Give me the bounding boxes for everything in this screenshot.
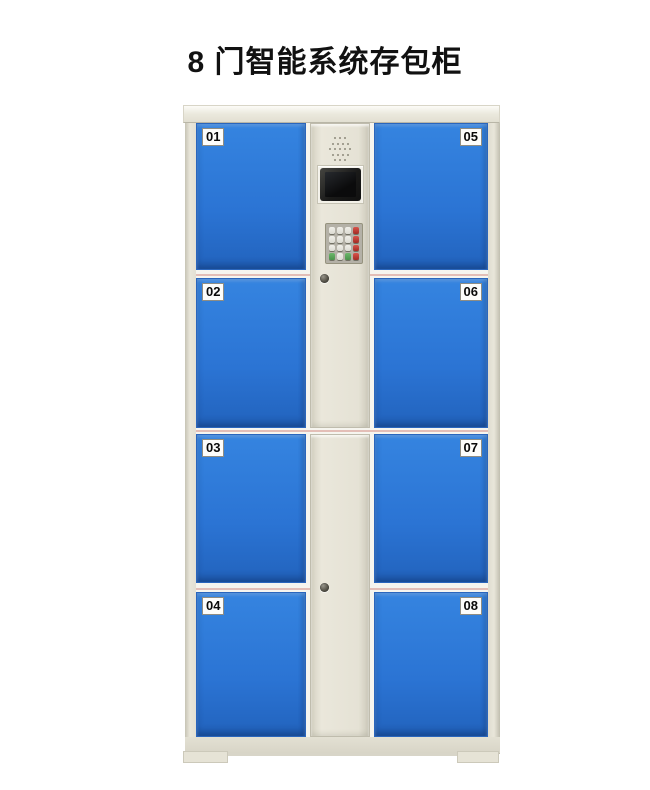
page-title: 8 门智能系统存包柜 bbox=[0, 37, 650, 81]
keypad-button-green bbox=[345, 253, 351, 260]
product-image: 8 门智能系统存包柜 01 02 03 04 05 bbox=[0, 0, 650, 790]
control-panel-upper-door bbox=[310, 123, 370, 428]
ground-shadow bbox=[225, 753, 461, 756]
speaker-dot-row bbox=[334, 137, 346, 139]
keypad-button-red bbox=[353, 227, 359, 234]
keypad-button-red bbox=[353, 245, 359, 252]
door-number-label: 05 bbox=[460, 128, 482, 146]
door-number-label: 08 bbox=[460, 597, 482, 615]
keypad-button bbox=[329, 245, 335, 252]
keypad-button bbox=[337, 236, 343, 243]
speaker-dot-row bbox=[332, 154, 349, 156]
locker-door-07: 07 bbox=[374, 434, 488, 583]
speaker-dot-row bbox=[334, 159, 346, 161]
display-screen-bezel bbox=[320, 168, 361, 201]
locker-door-01: 01 bbox=[196, 123, 306, 270]
locker-door-04: 04 bbox=[196, 592, 306, 737]
lock-icon bbox=[320, 583, 329, 592]
keypad-button bbox=[345, 227, 351, 234]
door-number-label: 06 bbox=[460, 283, 482, 301]
keypad-button bbox=[329, 236, 335, 243]
speaker-dot-row bbox=[332, 143, 349, 145]
locker-door-06: 06 bbox=[374, 278, 488, 428]
keypad-button bbox=[345, 245, 351, 252]
cabinet-foot-right bbox=[457, 751, 499, 763]
keypad-button-red bbox=[353, 253, 359, 260]
cabinet-top-cap bbox=[183, 105, 500, 123]
cabinet-body: 01 02 03 04 05 06 07 08 bbox=[185, 123, 500, 737]
keypad-button bbox=[337, 227, 343, 234]
locker-door-08: 08 bbox=[374, 592, 488, 737]
locker-door-02: 02 bbox=[196, 278, 306, 428]
door-number-label: 03 bbox=[202, 439, 224, 457]
keypad-button bbox=[337, 245, 343, 252]
locker-cabinet: 01 02 03 04 05 06 07 08 bbox=[183, 105, 502, 765]
door-number-label: 07 bbox=[460, 439, 482, 457]
locker-door-03: 03 bbox=[196, 434, 306, 583]
lock-icon bbox=[320, 274, 329, 283]
keypad-button bbox=[345, 236, 351, 243]
cabinet-foot-left bbox=[183, 751, 228, 763]
cabinet-right-edge bbox=[488, 123, 500, 737]
keypad bbox=[325, 223, 363, 264]
control-column bbox=[310, 123, 370, 737]
speaker-dot-row bbox=[329, 148, 351, 150]
cabinet-left-edge bbox=[185, 123, 196, 737]
keypad-button-red bbox=[353, 236, 359, 243]
keypad-button-green bbox=[329, 253, 335, 260]
locker-door-05: 05 bbox=[374, 123, 488, 270]
display-screen-frame bbox=[317, 165, 364, 204]
door-number-label: 04 bbox=[202, 597, 224, 615]
display-screen bbox=[325, 172, 356, 197]
keypad-button bbox=[329, 227, 335, 234]
door-number-label: 01 bbox=[202, 128, 224, 146]
control-panel-lower-door bbox=[310, 434, 370, 737]
cabinet-base bbox=[185, 737, 500, 754]
door-number-label: 02 bbox=[202, 283, 224, 301]
speaker-grille-icon bbox=[325, 137, 355, 161]
keypad-button bbox=[337, 253, 343, 260]
